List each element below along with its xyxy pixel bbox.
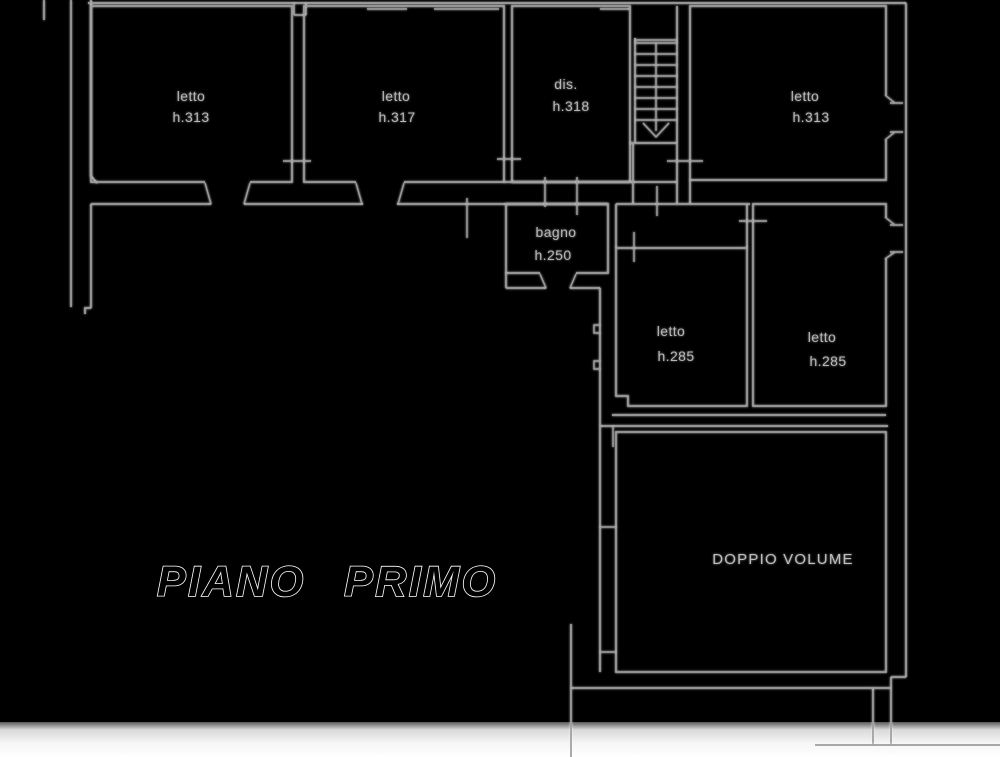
- room-letto-e-walls: [753, 204, 886, 406]
- room-labels-group: letto h.313 letto h.317 dis. h.318 letto…: [172, 76, 853, 568]
- room-height-letto-nw: h.313: [172, 109, 209, 125]
- room-height-letto-n: h.317: [378, 109, 415, 125]
- room-label-letto-nw: letto: [177, 88, 205, 104]
- room-letto-ne-walls: [690, 6, 886, 180]
- room-label-letto-c: letto: [657, 323, 685, 339]
- room-label-doppio-volume: DOPPIO VOLUME: [712, 551, 853, 568]
- floor-plan-page: letto h.313 letto h.317 dis. h.318 letto…: [0, 0, 1000, 757]
- room-label-letto-e: letto: [808, 329, 836, 345]
- room-dis-walls: [512, 6, 630, 182]
- room-height-dis: h.318: [552, 98, 589, 114]
- room-label-dis: dis.: [554, 76, 577, 92]
- room-height-bagno: h.250: [534, 247, 571, 263]
- door-symbols-group: [205, 159, 767, 288]
- room-label-bagno: bagno: [536, 224, 577, 240]
- floor-plan-drawing: letto h.313 letto h.317 dis. h.318 letto…: [0, 0, 1000, 757]
- room-height-letto-ne: h.313: [792, 109, 829, 125]
- staircase: [635, 40, 677, 137]
- floor-title: PIANO PRIMO: [157, 558, 498, 606]
- room-height-letto-e: h.285: [809, 353, 846, 369]
- room-label-letto-ne: letto: [791, 88, 819, 104]
- window-symbols-group: [594, 95, 903, 369]
- room-height-letto-c: h.285: [657, 348, 694, 364]
- room-label-letto-n: letto: [382, 88, 410, 104]
